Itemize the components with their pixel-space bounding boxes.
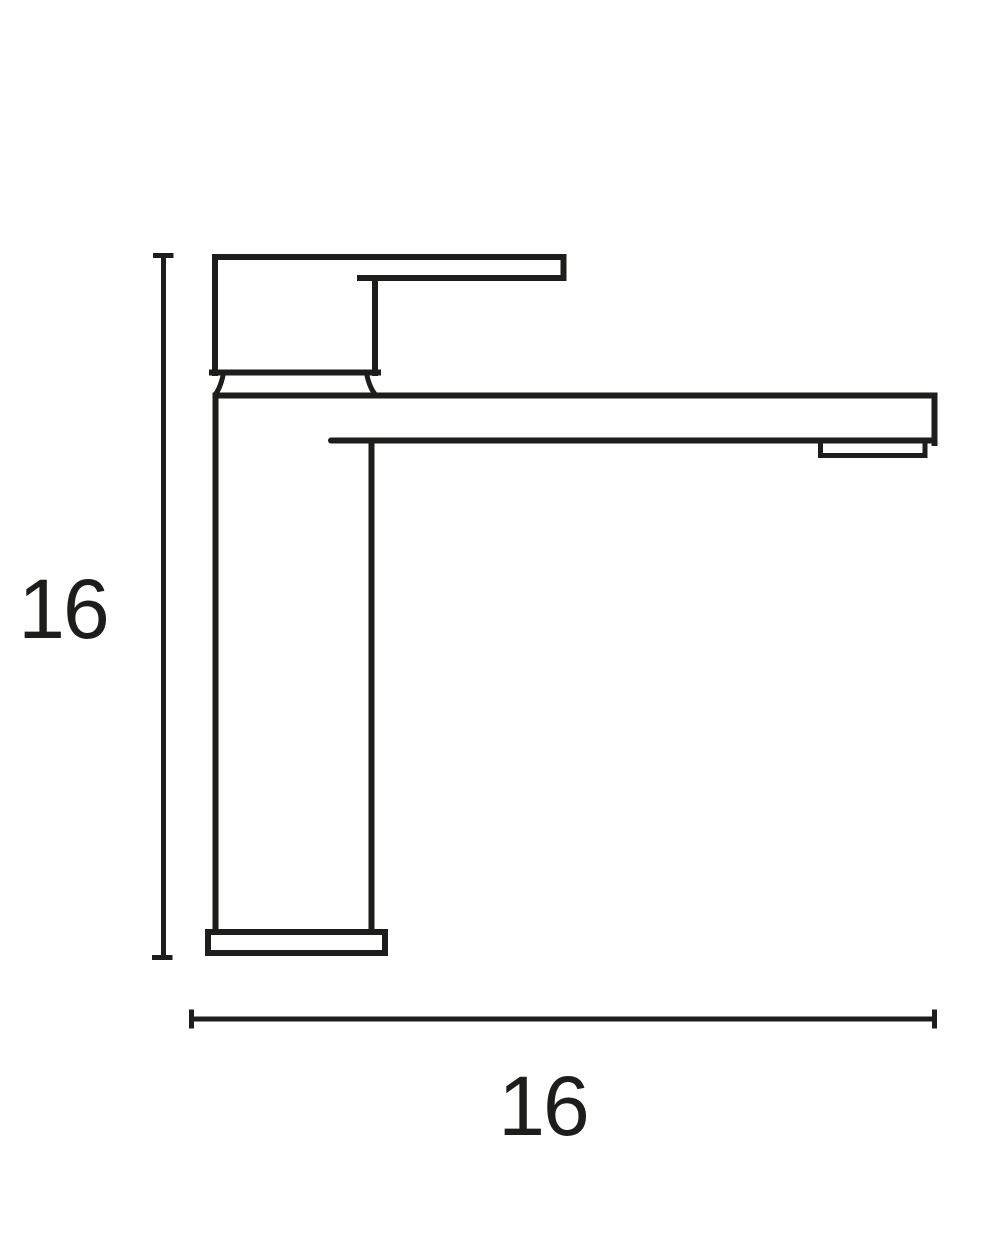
faucet-outline-group	[208, 257, 935, 953]
handle-lever-outline	[215, 257, 564, 373]
neck-right-curve	[367, 376, 375, 394]
width-dimension-label: 16	[498, 1059, 587, 1153]
spout-and-column-outline	[216, 396, 935, 930]
height-dimension-group	[152, 256, 174, 958]
neck-left-curve	[216, 376, 223, 394]
height-dimension-label: 16	[18, 562, 107, 656]
width-dimension-group	[192, 1010, 935, 1029]
drawing-canvas: 16 16	[0, 0, 1000, 1257]
base-plate	[208, 932, 385, 953]
faucet-dimension-diagram: 16 16	[0, 0, 1000, 1257]
